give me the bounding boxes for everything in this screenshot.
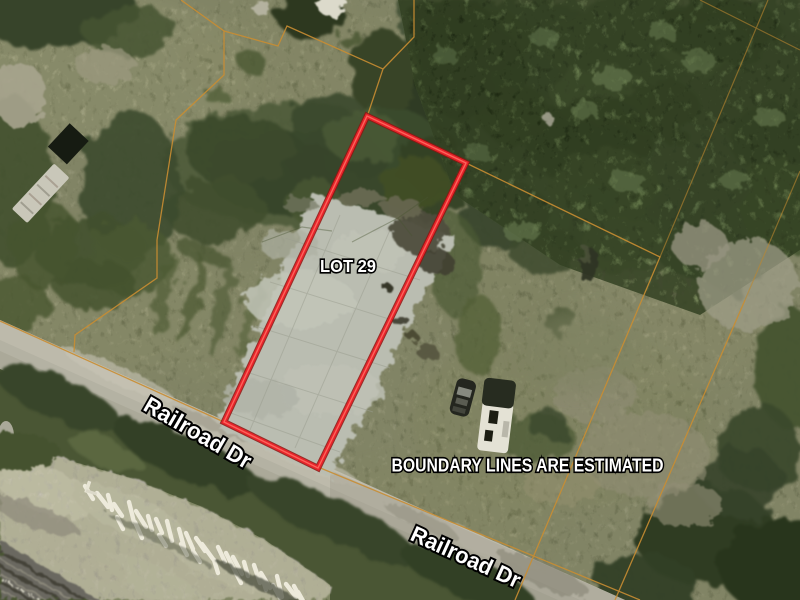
svg-text:BOUNDARY LINES ARE ESTIMATED: BOUNDARY LINES ARE ESTIMATED	[392, 455, 664, 476]
svg-text:LOT 29: LOT 29	[320, 256, 376, 276]
